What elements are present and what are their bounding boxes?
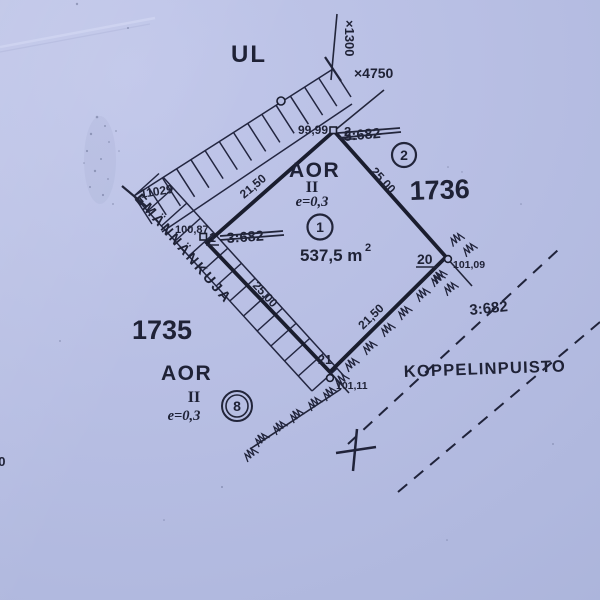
map-labels: UL ×1300 ×4750 11029 EMÄNNÄNKUJA KOPPELI… [0, 20, 566, 469]
point-number: 1 [209, 231, 216, 245]
scanned-cadastral-map-page: UL ×1300 ×4750 11029 EMÄNNÄNKUJA KOPPELI… [0, 0, 600, 600]
point-number: 21 [318, 353, 332, 367]
point-number: 20 [417, 251, 433, 267]
zone-code: AOR [161, 362, 212, 385]
zone-label-plot1: AOR II e=0,3 1 [289, 159, 340, 240]
street-sign-ul: UL [231, 41, 267, 68]
cadastral-map: UL ×1300 ×4750 11029 EMÄNNÄNKUJA KOPPELI… [0, 0, 600, 600]
plot-number-8: 8 [233, 398, 241, 414]
plot-number-1: 1 [316, 219, 324, 235]
dimension-edge-21-20: 21,50 [355, 301, 387, 332]
grid-coord-vertical-label: ×1300 [342, 20, 357, 57]
zone-label-plot8: AOR II e=0,3 8 [161, 362, 252, 424]
pencil-speckles [59, 3, 554, 541]
parcel-ref-left-struck: 3:682 [220, 228, 284, 247]
vegetation-symbols [241, 230, 477, 462]
point-number: 2 [344, 124, 351, 139]
block-number-1736: 1736 [409, 174, 470, 206]
boundary-point-2-marker [330, 127, 337, 134]
street-name-emannankuja: EMÄNNÄNKUJA [131, 190, 236, 307]
edge-partial-number: 00 [0, 454, 5, 469]
elevation: 100,87 [175, 224, 209, 236]
zone-efficiency: e=0,3 [168, 408, 201, 424]
street-boundary-point-marker [277, 97, 285, 105]
block-number-1735: 1735 [132, 315, 192, 345]
svg-text:537,5 m: 537,5 m [300, 246, 362, 265]
plot-number-2-circled: 2 [392, 143, 416, 167]
grid-coord-horizontal-label: ×4750 [354, 65, 394, 81]
zone-efficiency: e=0,3 [296, 194, 329, 210]
plot-area-label: 537,5 m 2 [300, 242, 371, 265]
elevation: 101,09 [453, 259, 485, 271]
park-name-koppelinpuisto: KOPPELINPUISTO [404, 357, 567, 381]
zone-storeys: II [188, 389, 200, 406]
area-exponent: 2 [365, 242, 371, 254]
parcel-ref-right: 3:682 [469, 298, 509, 319]
boundary-point-21-marker [327, 375, 334, 382]
elevation: 101,11 [336, 380, 368, 392]
boundary-point-20-marker [445, 256, 452, 263]
survey-cross [336, 429, 376, 471]
dimension-edge-2-20: 25.00 [368, 164, 399, 196]
paper-crease [0, 18, 155, 52]
dimension-edge-1-2: 21,50 [237, 171, 269, 201]
elevation: 99,99 [298, 123, 328, 137]
svg-text:2: 2 [400, 147, 408, 163]
boundary-point-2-label: 99,99 2 [298, 123, 357, 139]
